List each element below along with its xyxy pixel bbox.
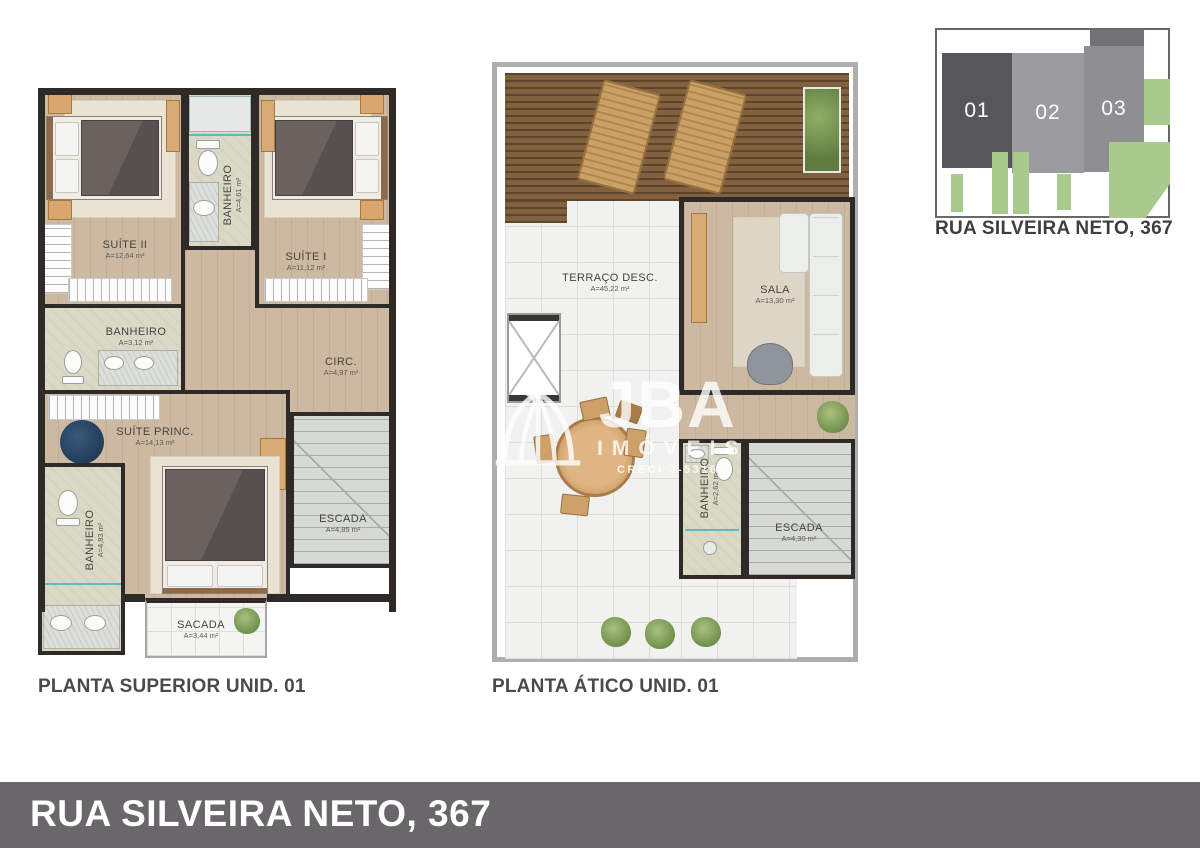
closet-hatch xyxy=(48,395,160,420)
toilet-tank xyxy=(196,140,220,149)
bed-suite-ii xyxy=(46,116,162,200)
sink xyxy=(193,200,215,216)
unit-03-label: 03 xyxy=(1101,97,1126,121)
chair xyxy=(533,434,557,465)
wardrobe xyxy=(261,100,275,152)
wall xyxy=(267,594,396,602)
plant xyxy=(601,617,631,647)
plan-superior: SUÍTE II A=12,64 m² BANHEIRO A=4,61 m² xyxy=(38,88,396,660)
nightstand xyxy=(360,200,384,220)
footer-address: RUA SILVEIRA NETO, 367 xyxy=(0,782,1200,846)
site-green xyxy=(951,174,963,212)
unit-02-label: 02 xyxy=(1035,101,1060,125)
site-green xyxy=(1013,152,1029,214)
plant xyxy=(817,401,849,433)
shower-glass xyxy=(189,134,251,136)
site-green xyxy=(992,152,1008,214)
bed-suite-princ xyxy=(162,466,268,594)
floorplan-flyer: SUÍTE II A=12,64 m² BANHEIRO A=4,61 m² xyxy=(0,0,1200,848)
bed-suite-i xyxy=(272,116,388,200)
toilet xyxy=(198,150,218,176)
sideboard xyxy=(691,213,707,323)
sofa xyxy=(809,213,843,377)
shower-glass xyxy=(685,529,739,531)
toilet-tank xyxy=(62,376,84,384)
wood-deck xyxy=(505,201,567,223)
plan-atico-title: PLANTA ÁTICO UNID. 01 xyxy=(492,676,719,698)
plant xyxy=(234,608,260,634)
site-unit-01: 01 xyxy=(942,53,1012,168)
chair xyxy=(560,494,590,517)
sink xyxy=(104,356,124,370)
sink xyxy=(50,615,72,631)
plan-atico: SALA A=13,30 m² BANHEIRO A=2,62 m² ESCAD… xyxy=(492,62,858,662)
chair xyxy=(623,428,647,459)
shaft xyxy=(507,313,561,403)
armchair xyxy=(747,343,793,385)
closet-hatch xyxy=(264,278,368,302)
room-escada-atico xyxy=(745,439,855,579)
round-chair xyxy=(60,420,104,464)
site-green xyxy=(1057,174,1071,210)
shower-drain xyxy=(703,541,717,555)
wardrobe xyxy=(166,100,180,152)
site-green xyxy=(1109,142,1170,218)
sink xyxy=(84,615,106,631)
toilet xyxy=(58,490,78,516)
sofa-chaise xyxy=(779,213,809,273)
toilet-tank xyxy=(56,518,80,526)
nightstand xyxy=(48,200,72,220)
room-escada-superior xyxy=(290,412,396,568)
plant xyxy=(691,617,721,647)
footer-banner: RUA SILVEIRA NETO, 367 xyxy=(0,782,1200,848)
sink xyxy=(134,356,154,370)
site-green xyxy=(1144,79,1170,125)
planter xyxy=(803,87,841,173)
sink xyxy=(689,449,705,459)
round-table xyxy=(555,417,635,497)
nightstand xyxy=(360,94,384,114)
closet-hatch xyxy=(68,278,172,302)
toilet-tank xyxy=(713,447,735,455)
unit-01-label: 01 xyxy=(964,99,989,123)
shower xyxy=(189,96,251,132)
shower-glass xyxy=(42,583,121,585)
site-diagram: 01 02 03 xyxy=(935,28,1170,218)
plant xyxy=(645,619,675,649)
toilet xyxy=(715,457,733,481)
wall xyxy=(125,594,145,602)
nightstand xyxy=(48,94,72,114)
site-caption: RUA SILVEIRA NETO, 367 xyxy=(935,218,1170,240)
toilet xyxy=(64,350,82,374)
plan-superior-title: PLANTA SUPERIOR UNID. 01 xyxy=(38,676,306,698)
shaft-x-icon xyxy=(509,315,559,401)
